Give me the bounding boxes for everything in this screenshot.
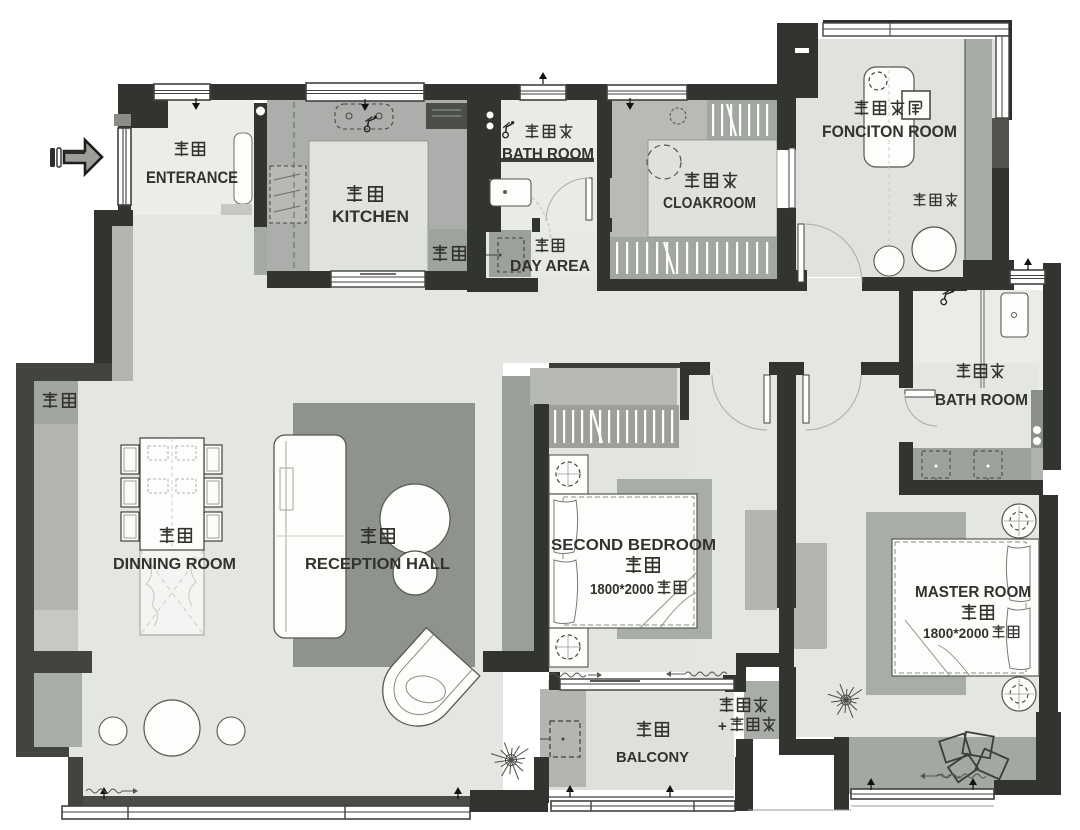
svg-text:CLOAKROOM: CLOAKROOM <box>663 195 756 212</box>
svg-text:1800*2000: 1800*2000 <box>923 625 989 641</box>
svg-text:FONCITON ROOM: FONCITON ROOM <box>822 122 957 141</box>
svg-text:1800*2000: 1800*2000 <box>590 581 654 598</box>
svg-text:ENTERANCE: ENTERANCE <box>146 168 238 187</box>
svg-text:+: + <box>718 718 727 735</box>
svg-text:SECOND BEDROOM: SECOND BEDROOM <box>551 537 716 554</box>
svg-text:BATH ROOM: BATH ROOM <box>502 146 594 163</box>
svg-text:BATH ROOM: BATH ROOM <box>935 392 1028 409</box>
svg-text:DINNING ROOM: DINNING ROOM <box>113 556 236 573</box>
svg-text:KITCHEN: KITCHEN <box>332 207 409 226</box>
svg-text:BALCONY: BALCONY <box>616 749 689 766</box>
svg-text:MASTER ROOM: MASTER ROOM <box>915 584 1031 601</box>
svg-text:RECEPTION HALL: RECEPTION HALL <box>305 556 450 573</box>
svg-text:DAY AREA: DAY AREA <box>510 258 590 275</box>
